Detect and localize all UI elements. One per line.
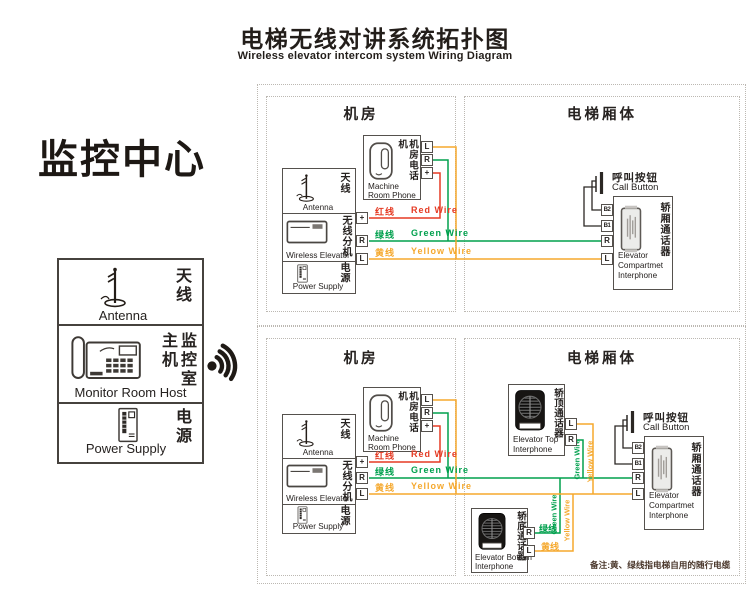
compartment-label-en2: Compartmet	[649, 501, 694, 510]
panel-row-antenna: 天线 Antenna	[59, 260, 202, 324]
upper-elevator-car-header: 电梯厢体	[464, 103, 740, 124]
top-interphone-label-zh: 轿顶通话器	[551, 388, 562, 454]
wireless-unit-box: 天线 Antenna 无线分机 Wireless Elevator 电源 Pow…	[282, 168, 356, 294]
call-button-label-en: Call Button	[643, 422, 689, 433]
antenna-icon	[289, 417, 321, 448]
yellow-wire-label: 黄线Yellow Wire	[375, 481, 472, 494]
terminal-r: R	[356, 472, 368, 484]
compartment-interphone-box: 轿厢通话器 Elevator Compartmet Interphone	[613, 196, 673, 290]
unit-antenna-zh: 天线	[338, 172, 350, 202]
panel-row-power: 电源 Power Supply	[59, 402, 202, 458]
elevator-top-interphone-box: 轿顶通话器 Elevator Top Interphone	[508, 384, 565, 456]
top-interphone-label-en2: Interphone	[513, 445, 552, 454]
red-wire-label-en: Red Wire	[411, 205, 458, 218]
terminal-l: L	[356, 253, 368, 265]
terminal-b2: B2	[632, 442, 644, 454]
unit-extension-section: 无线分机 Wireless Elevator	[283, 458, 355, 504]
terminal-r: R	[601, 235, 613, 247]
green-wire-label: 绿线Green Wire	[375, 465, 469, 478]
unit-antenna-section: 天线 Antenna	[283, 169, 355, 213]
machine-phone-label-en1: Machine	[368, 434, 399, 443]
unit-extension-en: Wireless Elevator	[283, 494, 353, 503]
panel-row-host: 监控室主机 Monitor Room Host	[59, 324, 202, 402]
yellow-wire-label-zh: 黄线	[375, 481, 395, 494]
power-supply-icon	[115, 407, 141, 443]
unit-antenna-en: Antenna	[283, 203, 353, 212]
unit-antenna-en: Antenna	[283, 448, 353, 457]
terminal-plus: +	[421, 420, 433, 432]
terminal-l: L	[632, 488, 644, 500]
green-wire-label-en: Green Wire	[411, 228, 469, 241]
terminal-l: L	[356, 488, 368, 500]
antenna-label-en: Antenna	[71, 308, 175, 323]
red-wire-label-en: Red Wire	[411, 449, 458, 462]
call-button-label-en: Call Button	[612, 182, 658, 193]
page-title: 电梯无线对讲系统拓扑图	[180, 20, 570, 54]
terminal-r: R	[632, 472, 644, 484]
page-subtitle: Wireless elevator intercom system Wiring…	[155, 50, 595, 62]
wireless-extension-icon	[286, 464, 328, 488]
machine-room-phone-box: 机房电话机 Machine Room Phone	[363, 387, 421, 452]
unit-power-en: Power Supply	[283, 282, 353, 291]
bottom-interphone-label-en2: Interphone	[475, 563, 513, 572]
wireless-unit-box: 天线 Antenna 无线分机 Wireless Elevator 电源 Pow…	[282, 414, 356, 534]
unit-power-section: 电源 Power Supply	[283, 261, 355, 291]
green-wire-label-en: Green Wire	[411, 465, 469, 478]
monitor-center-heading: 监控中心	[38, 127, 206, 185]
antenna-label-zh: 天线	[172, 267, 191, 313]
compartment-label-en3: Interphone	[649, 511, 688, 520]
wireless-extension-icon	[286, 220, 328, 244]
power-supply-icon	[295, 506, 310, 524]
power-label-en: Power Supply	[61, 441, 191, 456]
yellow-wire-vertical-label: Yellow Wire	[586, 435, 595, 489]
machine-phone-icon	[368, 141, 394, 181]
yellow-wire-label: 黄线Yellow Wire	[375, 246, 472, 259]
red-wire-label-zh: 红线	[375, 205, 395, 218]
yellow-wire-label-zh: 黄线	[375, 246, 395, 259]
green-wire-vertical-label: Green Wire	[550, 488, 559, 542]
green-wire-label: 绿线Green Wire	[375, 228, 469, 241]
yellow-wire-label-en: Yellow Wire	[411, 246, 472, 259]
red-wire-label-zh: 红线	[375, 449, 395, 462]
elevator-bottom-interphone-box: 轿底通话器 Elevator Bottom Interphone	[471, 508, 528, 573]
unit-antenna-zh: 天线	[338, 418, 350, 448]
machine-phone-label-en1: Machine	[368, 182, 399, 191]
yellow-wire-vertical-label: Yellow Wire	[563, 494, 572, 548]
power-supply-icon	[295, 264, 310, 283]
compartment-label-en2: Compartmet	[618, 261, 663, 270]
unit-extension-section: 无线分机 Wireless Elevator	[283, 213, 355, 261]
compartment-interphone-icon	[618, 204, 644, 254]
terminal-b1: B1	[632, 458, 644, 470]
terminal-l: L	[523, 545, 535, 557]
terminal-b2: B2	[601, 204, 613, 216]
terminal-l: L	[421, 394, 433, 406]
host-label-en: Monitor Room Host	[59, 385, 202, 400]
terminal-r: R	[421, 154, 433, 166]
green-wire-label-zh: 绿线	[375, 228, 395, 241]
terminal-r: R	[565, 434, 577, 446]
top-interphone-label-en1: Elevator Top	[513, 435, 558, 444]
green-wire-label-zh: 绿线	[375, 465, 395, 478]
unit-power-en: Power Supply	[283, 522, 353, 531]
footnote: 备注:黄、绿线指电梯自用的随行电缆	[590, 559, 730, 571]
compartment-interphone-icon	[649, 444, 675, 494]
yellow-wire-label-en: Yellow Wire	[411, 481, 472, 494]
terminal-l: L	[421, 141, 433, 153]
machine-room-phone-box: 机房电话机 Machine Room Phone	[363, 135, 421, 200]
speaker-icon	[476, 512, 508, 552]
upper-machine-room-header: 机房	[266, 103, 456, 124]
unit-antenna-section: 天线 Antenna	[283, 415, 355, 458]
terminal-r: R	[421, 407, 433, 419]
red-wire-label: 红线Red Wire	[375, 449, 458, 462]
monitor-center-panel: 天线 Antenna 监控室主机 Monitor Room Host 电源 Po…	[57, 258, 204, 464]
terminal-plus: +	[421, 167, 433, 179]
terminal-l: L	[601, 253, 613, 265]
unit-power-section: 电源 Power Supply	[283, 504, 355, 531]
antenna-icon	[289, 171, 321, 203]
desk-phone-icon	[69, 331, 145, 386]
lower-machine-room-header: 机房	[266, 347, 456, 368]
terminal-b1: B1	[601, 220, 613, 232]
speaker-icon	[513, 389, 547, 433]
antenna-icon	[89, 263, 137, 309]
terminal-r: R	[356, 235, 368, 247]
terminal-l: L	[565, 418, 577, 430]
terminal-r: R	[523, 527, 535, 539]
lower-elevator-car-header: 电梯厢体	[464, 347, 740, 368]
red-wire-label: 红线Red Wire	[375, 205, 458, 218]
yellow-wire-short-label: 黄线	[541, 540, 559, 553]
unit-extension-en: Wireless Elevator	[283, 251, 353, 260]
terminal-plus: +	[356, 456, 368, 468]
wireless-signal-icon	[202, 338, 256, 396]
machine-phone-icon	[368, 393, 394, 433]
host-label-zh: 监控室主机	[158, 332, 196, 390]
machine-phone-label-en2: Room Phone	[368, 191, 416, 200]
terminal-plus: +	[356, 212, 368, 224]
compartment-label-en3: Interphone	[618, 271, 657, 280]
compartment-interphone-box: 轿厢通话器 Elevator Compartmet Interphone	[644, 436, 704, 530]
